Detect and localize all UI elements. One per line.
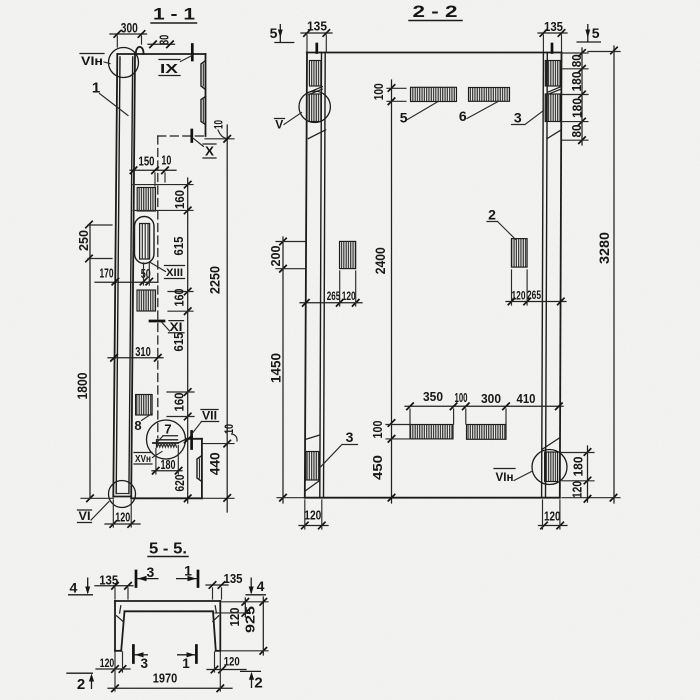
svg-text:250: 250 (76, 230, 91, 251)
svg-text:180: 180 (570, 71, 584, 91)
svg-text:3280: 3280 (596, 232, 612, 264)
svg-text:1970: 1970 (153, 671, 178, 686)
svg-text:3: 3 (346, 429, 354, 445)
svg-text:1450: 1450 (268, 353, 283, 383)
svg-text:100: 100 (372, 83, 386, 100)
svg-text:180: 180 (570, 98, 584, 118)
svg-text:X: X (205, 144, 214, 159)
svg-text:120: 120 (304, 509, 321, 523)
svg-text:3: 3 (147, 564, 155, 580)
svg-text:350: 350 (423, 389, 443, 404)
svg-text:160: 160 (172, 393, 187, 412)
svg-text:135: 135 (224, 572, 243, 586)
svg-text:6: 6 (459, 108, 467, 124)
svg-text:120: 120 (100, 656, 115, 670)
svg-text:8: 8 (134, 418, 141, 433)
svg-text:3: 3 (514, 110, 522, 126)
svg-text:4: 4 (70, 580, 78, 596)
svg-text:3: 3 (141, 656, 149, 671)
svg-text:XVн: XVн (135, 453, 151, 465)
svg-text:150: 150 (139, 155, 155, 169)
svg-text:265: 265 (327, 289, 341, 303)
svg-text:180: 180 (161, 458, 176, 472)
svg-text:300: 300 (481, 391, 501, 406)
svg-text:120: 120 (342, 289, 356, 303)
svg-text:2: 2 (77, 676, 85, 693)
svg-text:100: 100 (371, 420, 385, 438)
svg-text:180: 180 (572, 456, 586, 476)
svg-text:80: 80 (157, 35, 172, 45)
svg-text:7: 7 (164, 422, 171, 437)
svg-text:135: 135 (307, 20, 327, 34)
svg-text:120: 120 (228, 607, 242, 626)
svg-text:80: 80 (570, 54, 584, 67)
svg-text:2 - 2: 2 - 2 (413, 2, 458, 21)
svg-text:5: 5 (592, 25, 600, 41)
svg-text:1800: 1800 (75, 373, 90, 400)
svg-text:1 - 1: 1 - 1 (153, 5, 195, 24)
svg-text:120: 120 (571, 481, 585, 498)
svg-text:2: 2 (254, 675, 262, 692)
svg-text:450: 450 (370, 455, 385, 480)
svg-text:2250: 2250 (208, 266, 223, 294)
svg-text:2: 2 (488, 207, 496, 223)
svg-text:615: 615 (171, 333, 186, 352)
svg-text:4: 4 (257, 578, 265, 594)
svg-text:VI: VI (79, 511, 91, 523)
svg-text:VIн: VIн (81, 54, 103, 68)
svg-text:120: 120 (115, 511, 130, 525)
svg-text:5: 5 (400, 110, 408, 126)
svg-text:5: 5 (270, 25, 278, 41)
svg-text:2400: 2400 (373, 247, 388, 274)
svg-text:120: 120 (544, 510, 561, 524)
svg-text:410: 410 (517, 391, 536, 406)
svg-text:10: 10 (161, 153, 171, 167)
svg-text:V: V (275, 118, 283, 132)
svg-text:10: 10 (212, 120, 226, 129)
svg-text:VIн: VIн (496, 470, 514, 484)
svg-text:5 - 5.: 5 - 5. (149, 541, 187, 558)
svg-text:1: 1 (92, 80, 100, 97)
svg-text:160: 160 (172, 289, 187, 307)
svg-text:80: 80 (570, 124, 584, 137)
svg-text:200: 200 (268, 246, 283, 267)
svg-text:310: 310 (135, 345, 151, 359)
svg-text:XIII: XIII (166, 267, 183, 279)
svg-text:925: 925 (243, 606, 258, 633)
svg-text:160: 160 (172, 190, 187, 209)
svg-text:IX: IX (160, 61, 178, 76)
svg-text:300: 300 (121, 21, 138, 36)
svg-text:440: 440 (208, 452, 223, 475)
svg-text:VII: VII (202, 411, 217, 423)
svg-text:170: 170 (100, 267, 114, 281)
svg-text:615: 615 (171, 237, 186, 256)
svg-text:135: 135 (544, 20, 563, 34)
svg-text:620: 620 (172, 475, 187, 492)
svg-text:1: 1 (182, 656, 190, 671)
svg-text:10: 10 (222, 424, 236, 434)
